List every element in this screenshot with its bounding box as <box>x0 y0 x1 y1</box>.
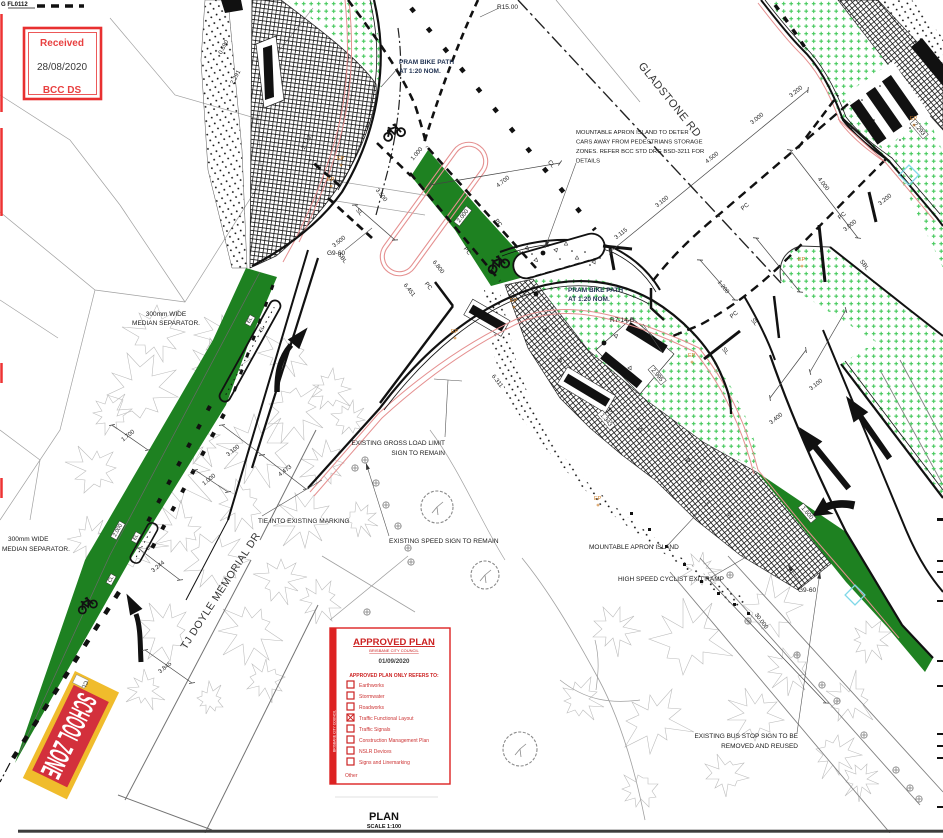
svg-text:TIE INTO EXISTING MARKING: TIE INTO EXISTING MARKING <box>258 518 350 525</box>
svg-text:SIGN TO REMAIN: SIGN TO REMAIN <box>391 450 445 457</box>
svg-text:G FL0112: G FL0112 <box>1 2 28 8</box>
svg-text:DETAILS: DETAILS <box>576 159 600 165</box>
svg-text:Roadworks: Roadworks <box>359 705 385 711</box>
svg-text:01/09/2020: 01/09/2020 <box>379 658 411 665</box>
svg-text:Traffic Signals: Traffic Signals <box>359 727 391 733</box>
svg-text:EP: EP <box>594 496 602 502</box>
svg-text:EXISTING GROSS LOAD LIMIT: EXISTING GROSS LOAD LIMIT <box>351 440 445 447</box>
svg-text:AT 1:20 NOM.: AT 1:20 NOM. <box>568 296 610 303</box>
svg-text:EXISTING BUS STOP SIGN TO BE: EXISTING BUS STOP SIGN TO BE <box>694 733 798 740</box>
svg-text:Other: Other <box>345 773 358 779</box>
svg-text:EXISTING SPEED SIGN TO REMAIN: EXISTING SPEED SIGN TO REMAIN <box>389 538 499 545</box>
svg-text:AT 1:20 NOM.: AT 1:20 NOM. <box>399 68 441 75</box>
svg-text:MOUNTABLE APRON ISLAND TO DETE: MOUNTABLE APRON ISLAND TO DETER <box>576 130 689 136</box>
svg-text:EP: EP <box>451 329 459 335</box>
svg-text:MEDIAN SEPARATOR.: MEDIAN SEPARATOR. <box>2 546 70 553</box>
svg-text:R7-14-B: R7-14-B <box>610 317 634 324</box>
svg-text:BRISBANE CITY COUNCIL: BRISBANE CITY COUNCIL <box>369 648 419 653</box>
svg-text:SCALE 1:100: SCALE 1:100 <box>367 824 401 830</box>
svg-text:PRAM BIKE PATH: PRAM BIKE PATH <box>568 287 623 294</box>
svg-text:Signs and Linemarking: Signs and Linemarking <box>359 760 410 766</box>
svg-text:REMOVED AND REUSED: REMOVED AND REUSED <box>721 743 798 750</box>
svg-text:MOUNTABLE APRON ISLAND: MOUNTABLE APRON ISLAND <box>589 544 679 551</box>
svg-text:G9-60: G9-60 <box>798 587 816 594</box>
svg-text:APPROVED PLAN ONLY REFERS TO:: APPROVED PLAN ONLY REFERS TO: <box>349 673 439 679</box>
svg-text:Traffic Functional Layout: Traffic Functional Layout <box>359 716 414 722</box>
svg-text:EP: EP <box>910 116 918 122</box>
svg-text:HIGH SPEED CYCLIST EXIT RAMP: HIGH SPEED CYCLIST EXIT RAMP <box>618 576 724 583</box>
svg-text:Earthworks: Earthworks <box>359 683 385 689</box>
svg-text:28/08/2020: 28/08/2020 <box>37 62 87 73</box>
svg-text:Construction Management Plan: Construction Management Plan <box>359 738 429 744</box>
svg-text:R15.00: R15.00 <box>497 4 518 11</box>
svg-text:BCC DS: BCC DS <box>43 85 82 96</box>
svg-text:300mm WIDE: 300mm WIDE <box>146 311 187 318</box>
svg-text:NSLR Devices: NSLR Devices <box>359 749 392 755</box>
svg-text:ZONES. REFER BCC STD DRG BSD-3: ZONES. REFER BCC STD DRG BSD-3211 FOR <box>576 149 704 155</box>
svg-text:MEDIAN SEPARATOR.: MEDIAN SEPARATOR. <box>132 320 200 327</box>
svg-text:EP: EP <box>688 353 696 359</box>
svg-text:APPROVED PLAN: APPROVED PLAN <box>353 637 435 648</box>
svg-text:CARS AWAY FROM PEDESTRIANS STO: CARS AWAY FROM PEDESTRIANS STORAGE <box>576 140 703 146</box>
svg-text:PRAM BIKE PATH: PRAM BIKE PATH <box>399 59 454 66</box>
svg-text:EP: EP <box>337 156 345 162</box>
svg-text:EP: EP <box>327 177 335 183</box>
svg-text:PLAN: PLAN <box>369 811 399 823</box>
svg-text:BRISBANE CITY COUNCIL: BRISBANE CITY COUNCIL <box>333 710 337 752</box>
svg-text:EP: EP <box>798 257 806 263</box>
svg-text:Stormwater: Stormwater <box>359 694 385 700</box>
svg-text:Received: Received <box>40 38 84 49</box>
svg-text:EP: EP <box>510 298 518 304</box>
svg-text:300mm WIDE: 300mm WIDE <box>8 536 49 543</box>
